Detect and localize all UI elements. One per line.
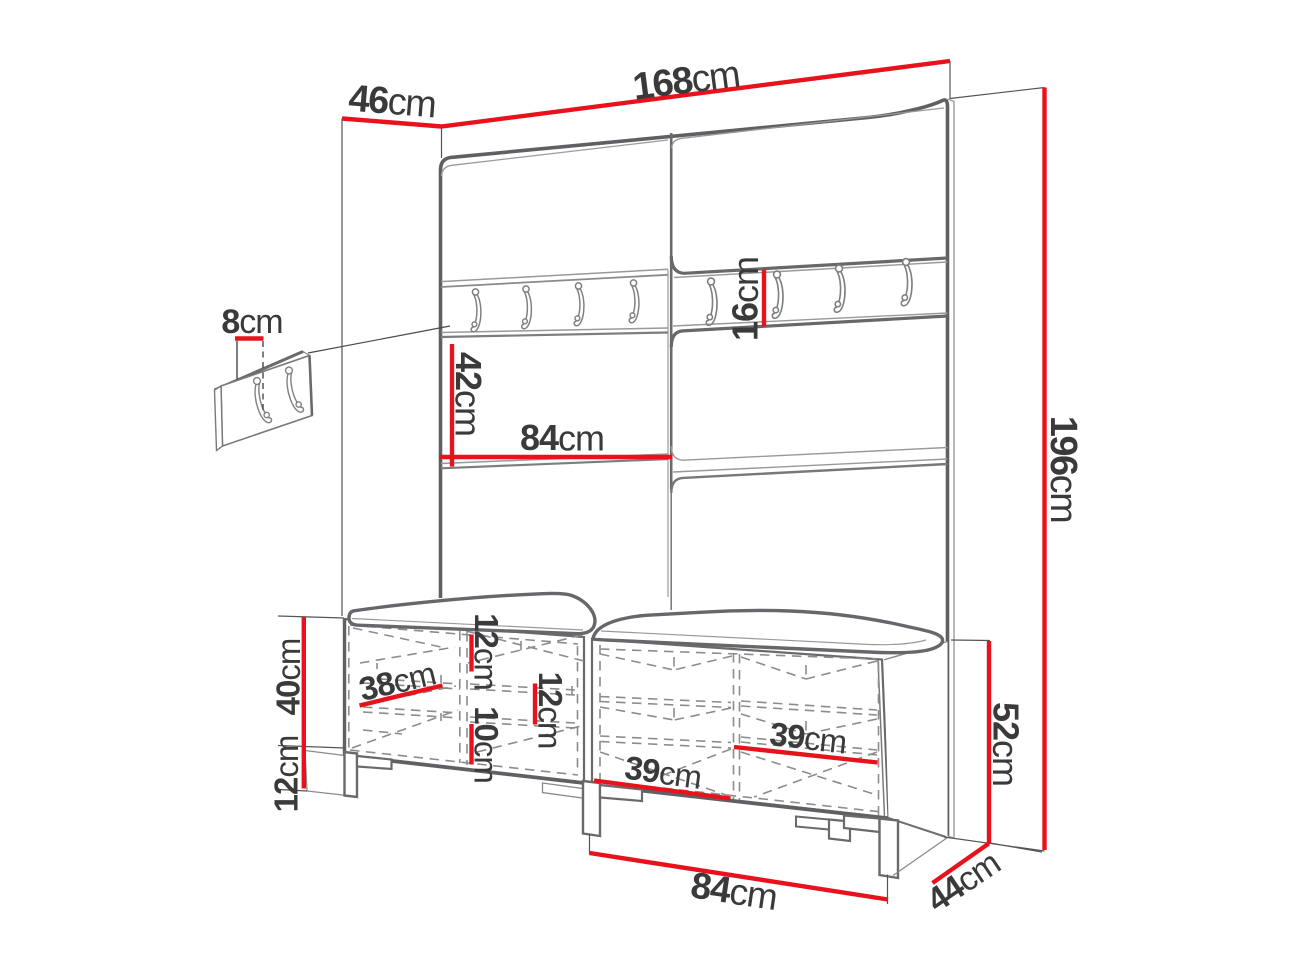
svg-text:46cm: 46cm: [347, 78, 437, 127]
svg-text:52cm: 52cm: [986, 702, 1027, 786]
svg-text:16cm: 16cm: [725, 257, 766, 341]
svg-text:10cm: 10cm: [468, 706, 505, 783]
svg-text:40cm: 40cm: [270, 639, 307, 716]
svg-text:196cm: 196cm: [1042, 416, 1084, 523]
svg-text:12cm: 12cm: [468, 613, 505, 690]
svg-text:84cm: 84cm: [520, 417, 604, 458]
svg-text:42cm: 42cm: [448, 352, 489, 436]
svg-text:12cm: 12cm: [268, 736, 305, 813]
svg-text:12cm: 12cm: [532, 672, 569, 749]
svg-text:8cm: 8cm: [221, 303, 282, 341]
